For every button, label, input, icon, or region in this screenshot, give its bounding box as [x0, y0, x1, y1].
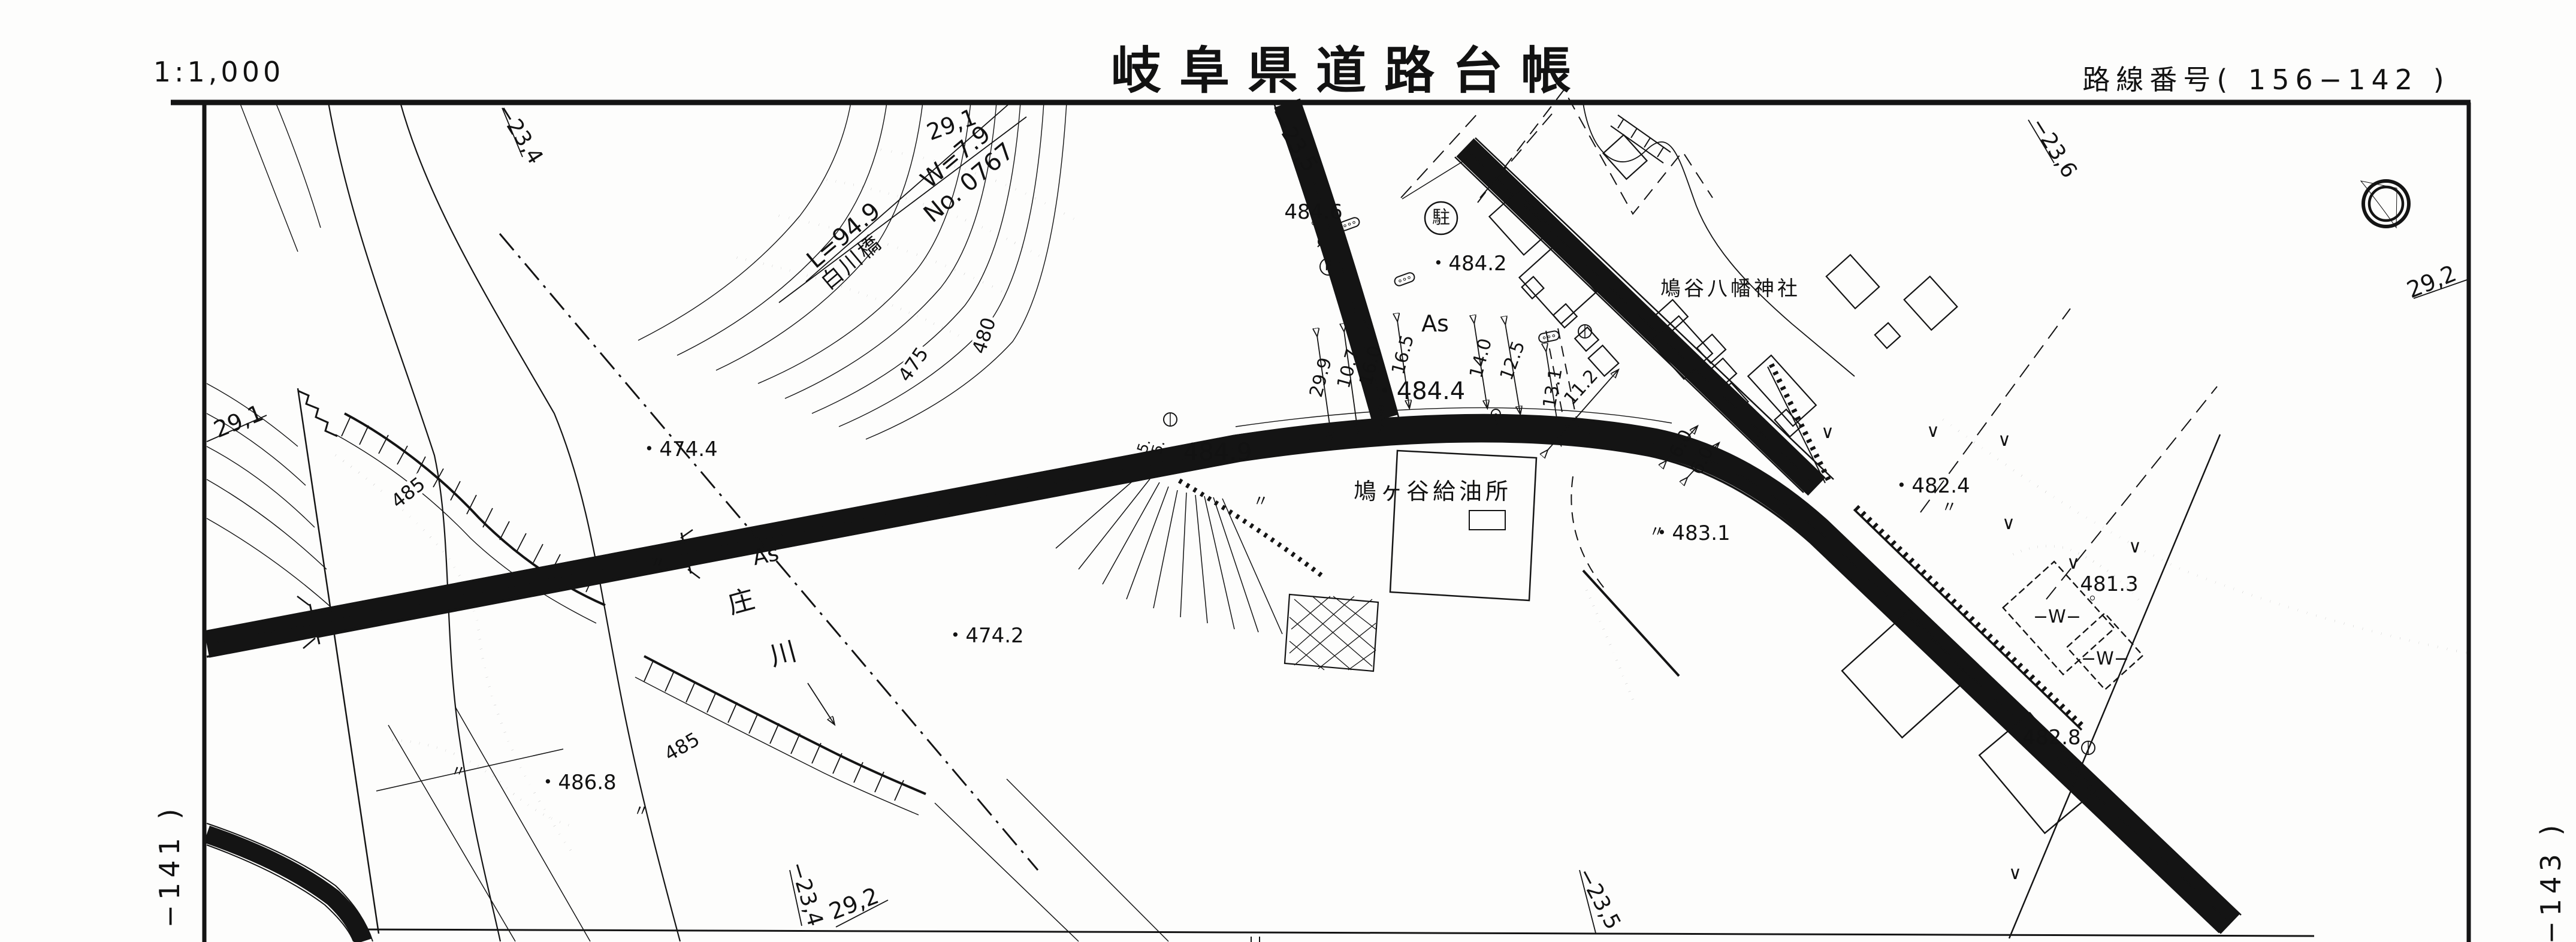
vegetation-mark: ∨	[1998, 431, 2011, 449]
river-banks	[328, 102, 680, 941]
spot-elevation-484-2: ・484.2	[1428, 253, 1506, 274]
f-symbol: F	[1325, 260, 1333, 273]
spot-elevation-486-8: ・486.8	[537, 772, 616, 793]
vegetation-mark: ∨	[2002, 515, 2015, 533]
vegetation-mark: ∨	[2067, 554, 2080, 572]
shrine-label: 鳩谷八幡神社	[1660, 279, 1801, 299]
ditto-mark: 〃	[650, 555, 666, 571]
scale-label: 1:1,000	[153, 58, 284, 86]
water-mark-1: −W−	[2033, 608, 2081, 626]
gas-station-label: 鳩ヶ谷給油所	[1354, 480, 1512, 503]
ditto-mark: 〃	[1253, 494, 1269, 509]
spot-elevation-474-4: ・474.4	[639, 439, 717, 460]
vegetation-mark: ∨	[2009, 865, 2022, 883]
surface-label-center: As	[1421, 312, 1449, 335]
sheet-corner-left: −141 )	[156, 804, 183, 928]
vegetation-mark: ∨	[2128, 538, 2142, 556]
road-underlays	[207, 103, 2230, 941]
page-title: 岐阜県道路台帳	[1111, 46, 1589, 96]
spot-elevation-474-2: ・474.2	[945, 626, 1023, 646]
ditto-mark: 〃	[633, 804, 649, 819]
sheet-corner-right: −143 )	[2537, 820, 2565, 942]
route-number-label: 路線番号( 156−142 )	[2082, 66, 2450, 93]
ditto-mark: 〃	[451, 764, 466, 780]
spot-elevation-482-4: ・482.4	[1891, 476, 1970, 496]
ditto-mark: 〃	[1941, 500, 1957, 515]
spot-elevation-482-8: 482.8	[2022, 727, 2080, 748]
surface-label-left: As	[751, 543, 781, 569]
spot-elevation-484-4: ・484.4	[1373, 379, 1466, 403]
parking-symbol: 駐	[1432, 209, 1450, 227]
spot-elevation-484-9: 484.9	[1183, 440, 1252, 464]
vegetation-mark: ∨	[1926, 422, 1940, 440]
spot-elevation-484-6: 484.6	[1284, 202, 1342, 222]
vegetation-mark: ∨	[1821, 424, 1834, 442]
water-mark-2: −W−	[2081, 650, 2129, 668]
spot-elevation-481-3: 481.3	[2080, 574, 2138, 594]
north-arrow-icon	[2361, 181, 2409, 228]
ditto-mark: 〃	[1649, 524, 1665, 540]
road-ledger-sheet: 1:1,000 岐阜県道路台帳 路線番号( 156−142 ) 29,1 29,…	[0, 0, 2576, 942]
